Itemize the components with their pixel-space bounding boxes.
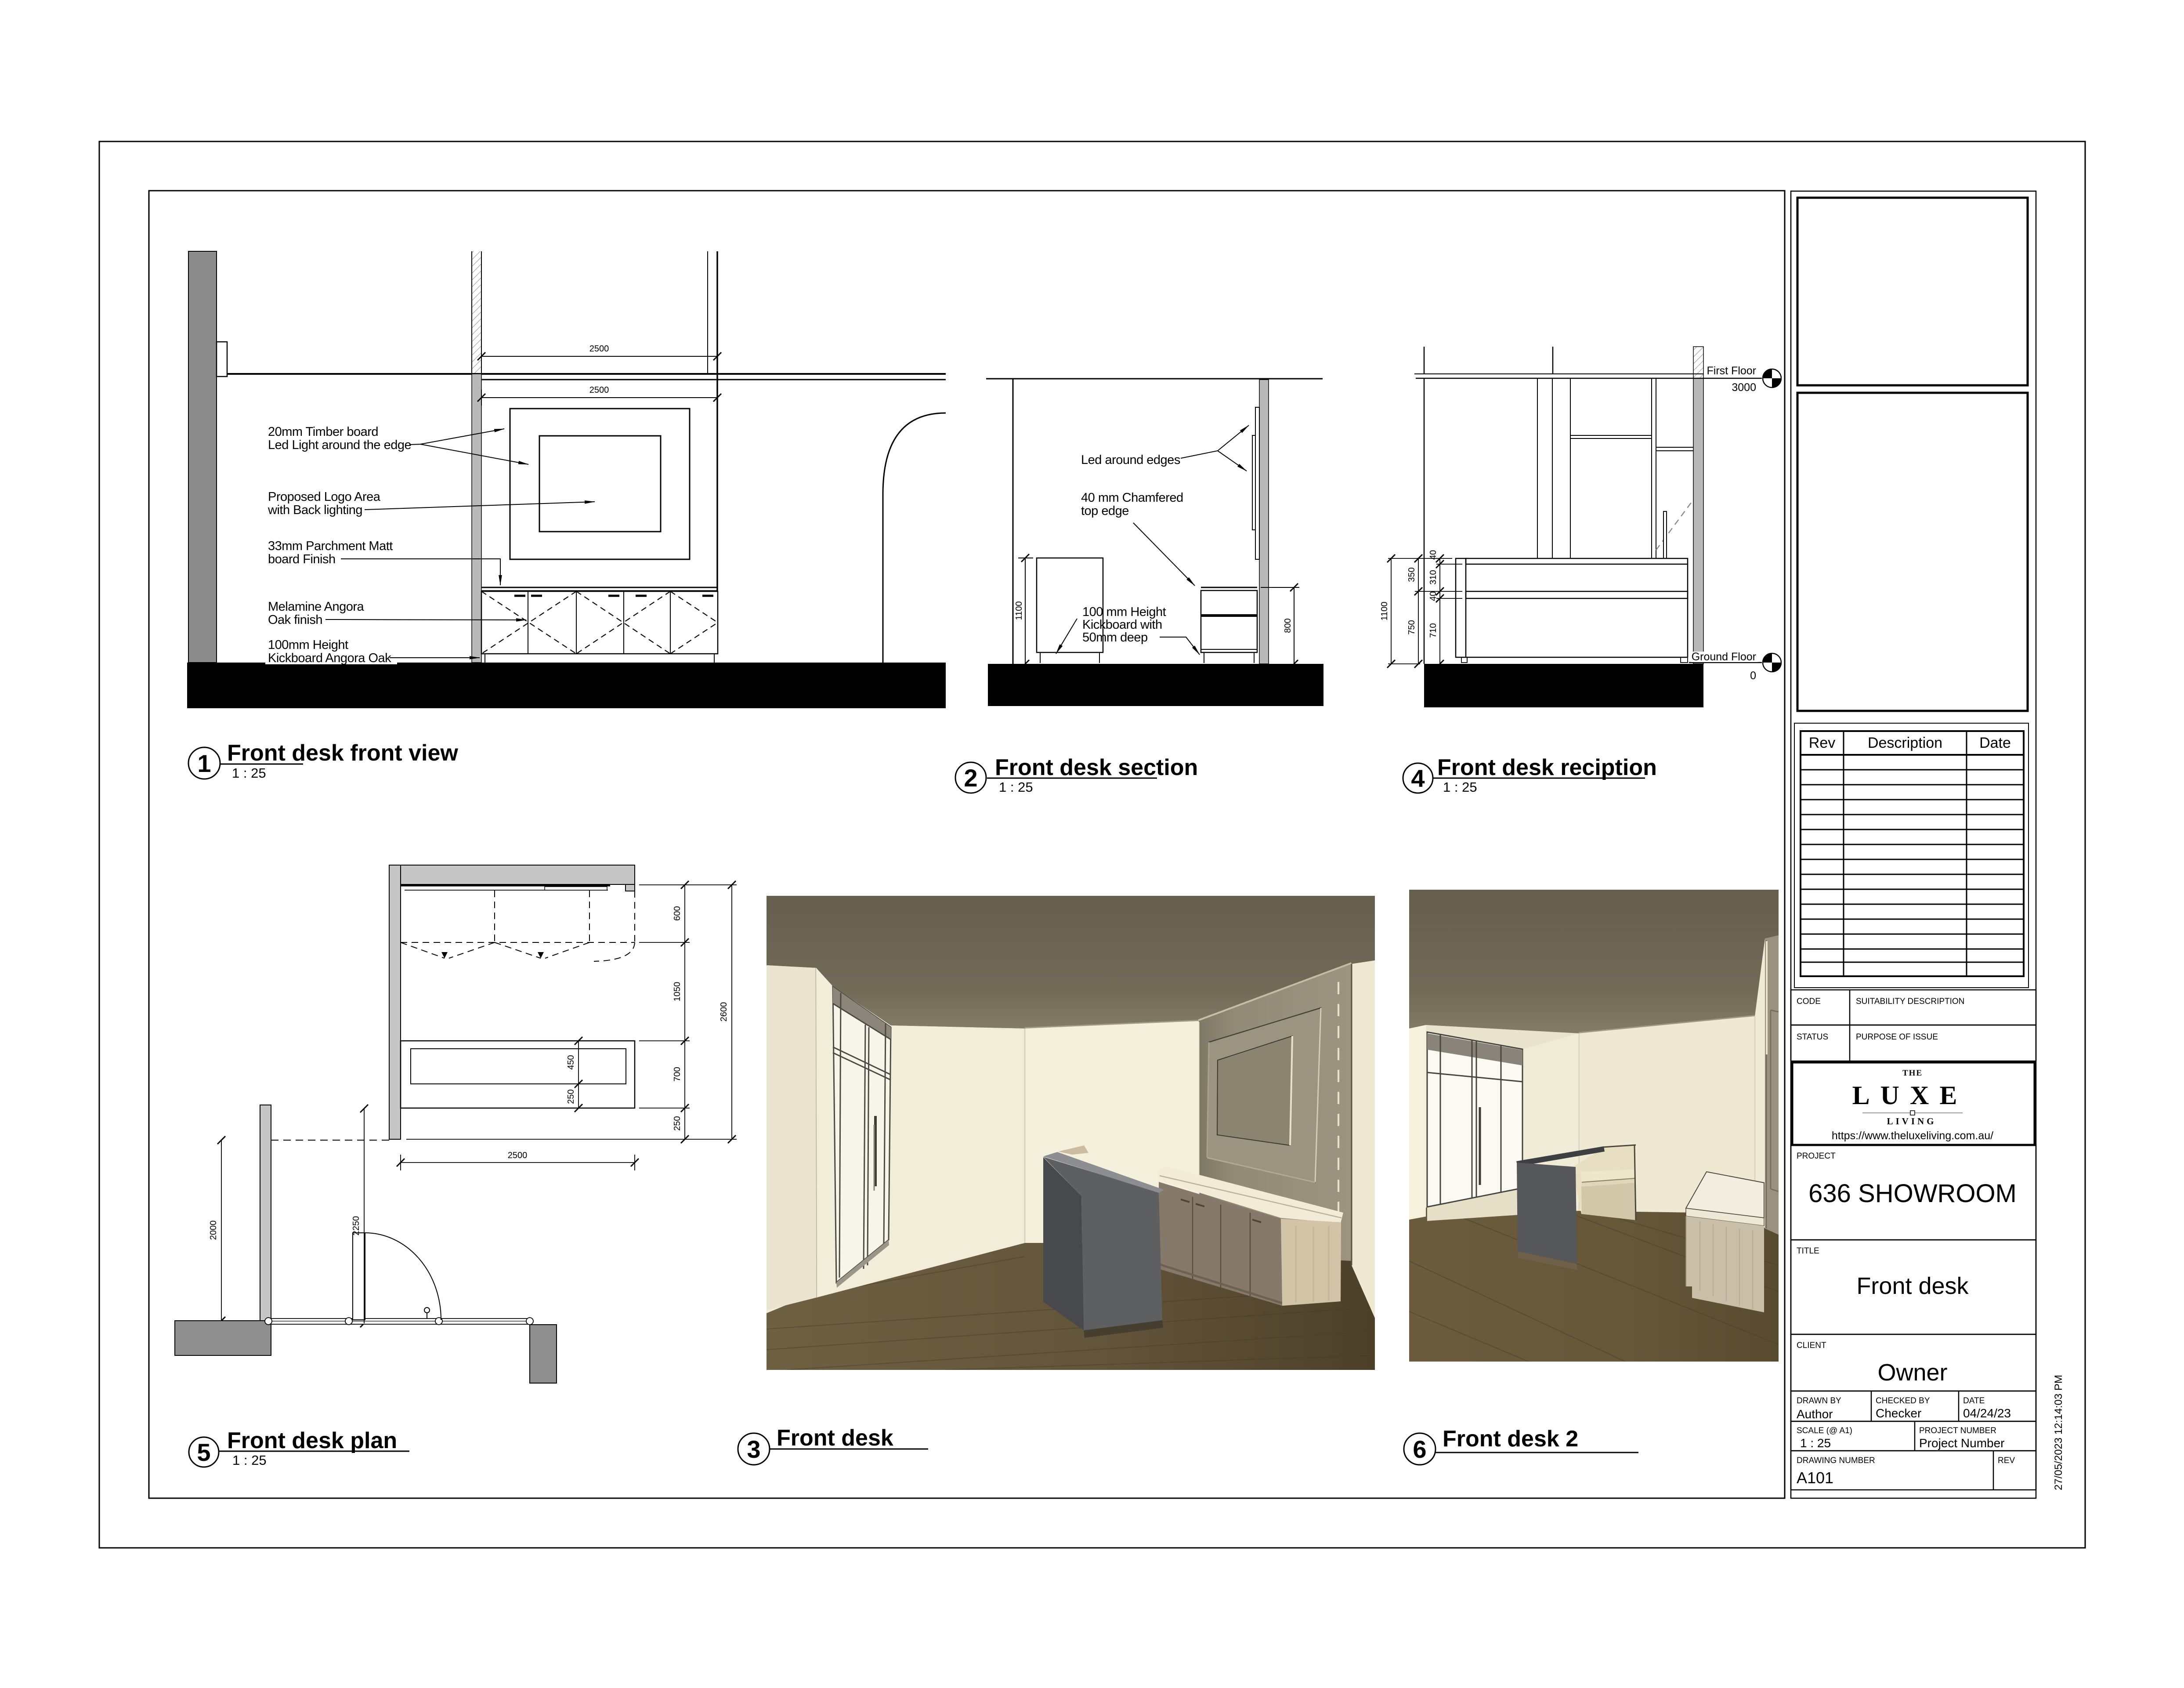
svg-text:PURPOSE OF ISSUE: PURPOSE OF ISSUE	[1856, 1032, 1938, 1042]
svg-text:LUXE: LUXE	[1852, 1081, 1968, 1110]
svg-text:CHECKED BY: CHECKED BY	[1876, 1396, 1930, 1405]
svg-text:04/24/23: 04/24/23	[1963, 1406, 2011, 1420]
svg-text:Description: Description	[1868, 735, 1942, 751]
svg-text:Kickboard Angora Oak: Kickboard Angora Oak	[268, 651, 391, 665]
svg-text:Front desk 2: Front desk 2	[1443, 1426, 1578, 1452]
svg-text:SUITABILITY DESCRIPTION: SUITABILITY DESCRIPTION	[1856, 997, 1964, 1006]
svg-text:100 mm Height: 100 mm Height	[1082, 605, 1166, 619]
svg-text:0: 0	[1750, 670, 1756, 682]
svg-text:40 mm Chamfered: 40 mm Chamfered	[1081, 491, 1183, 505]
svg-text:Owner: Owner	[1877, 1359, 1947, 1386]
svg-text:1100: 1100	[1014, 601, 1024, 620]
svg-text:Front desk section: Front desk section	[995, 755, 1198, 780]
svg-text:Front desk front view: Front desk front view	[227, 740, 458, 766]
svg-text:2250: 2250	[351, 1216, 361, 1236]
svg-text:Date: Date	[1979, 735, 2011, 751]
svg-text:1 : 25: 1 : 25	[1800, 1436, 1831, 1450]
svg-text:1 : 25: 1 : 25	[232, 1453, 267, 1468]
svg-text:Ground Floor: Ground Floor	[1692, 651, 1756, 663]
svg-text:310: 310	[1428, 570, 1438, 584]
svg-text:20mm Timber board: 20mm Timber board	[268, 425, 378, 439]
svg-text:top edge: top edge	[1081, 504, 1129, 518]
svg-text:1100: 1100	[1380, 601, 1389, 620]
svg-text:100mm Height: 100mm Height	[268, 638, 348, 652]
svg-text:1: 1	[197, 750, 211, 777]
svg-text:Front desk reciption: Front desk reciption	[1437, 755, 1657, 780]
svg-text:PROJECT: PROJECT	[1797, 1152, 1836, 1161]
svg-text:REV: REV	[1998, 1456, 2015, 1465]
svg-text:5: 5	[197, 1438, 210, 1466]
svg-text:Front desk: Front desk	[1856, 1273, 1969, 1299]
svg-text:STATUS: STATUS	[1797, 1032, 1828, 1042]
svg-text:50mm deep: 50mm deep	[1082, 630, 1148, 645]
svg-text:250: 250	[566, 1089, 576, 1104]
svg-text:710: 710	[1428, 623, 1438, 638]
svg-text:CODE: CODE	[1797, 997, 1821, 1006]
svg-text:LIVING: LIVING	[1887, 1116, 1936, 1127]
svg-text:40: 40	[1428, 591, 1438, 601]
svg-text:Kickboard with: Kickboard with	[1082, 618, 1162, 632]
svg-text:636 SHOWROOM: 636 SHOWROOM	[1808, 1179, 2017, 1208]
svg-text:with Back lighting: with Back lighting	[268, 503, 362, 517]
svg-text:250: 250	[673, 1116, 682, 1130]
svg-text:Led Light around the edge: Led Light around the edge	[268, 438, 411, 452]
svg-text:2600: 2600	[719, 1002, 729, 1022]
svg-text:450: 450	[566, 1055, 576, 1069]
svg-text:3: 3	[747, 1435, 760, 1463]
svg-text:2000: 2000	[209, 1221, 218, 1240]
svg-text:350: 350	[1407, 567, 1417, 582]
svg-text:board Finish: board Finish	[268, 552, 336, 566]
svg-text:Project Number: Project Number	[1919, 1436, 2005, 1450]
svg-text:DRAWING NUMBER: DRAWING NUMBER	[1797, 1456, 1875, 1465]
svg-text:First Floor: First Floor	[1707, 365, 1757, 377]
svg-text:6: 6	[1413, 1435, 1426, 1463]
svg-text:700: 700	[673, 1067, 682, 1081]
svg-text:SCALE (@ A1): SCALE (@ A1)	[1797, 1426, 1852, 1435]
svg-text:Melamine Angora: Melamine Angora	[268, 600, 365, 614]
svg-text:Front desk plan: Front desk plan	[227, 1428, 397, 1453]
svg-text:Author: Author	[1797, 1407, 1833, 1421]
svg-text:1 : 25: 1 : 25	[232, 765, 266, 781]
svg-text:PROJECT NUMBER: PROJECT NUMBER	[1919, 1426, 1996, 1435]
svg-text:https://www.theluxeliving.com.: https://www.theluxeliving.com.au/	[1832, 1130, 1993, 1142]
svg-text:3000: 3000	[1732, 381, 1756, 394]
svg-text:DATE: DATE	[1963, 1396, 1985, 1405]
svg-text:4: 4	[1411, 764, 1425, 792]
svg-text:40: 40	[1428, 550, 1438, 560]
svg-text:27/05/2023 12:14:03 PM: 27/05/2023 12:14:03 PM	[2053, 1375, 2065, 1490]
svg-text:1050: 1050	[673, 982, 682, 1002]
svg-text:2500: 2500	[589, 344, 609, 354]
svg-text:THE: THE	[1902, 1069, 1923, 1078]
svg-text:Checker: Checker	[1876, 1406, 1921, 1420]
svg-text:DRAWN BY: DRAWN BY	[1797, 1396, 1841, 1405]
svg-text:2500: 2500	[589, 385, 609, 395]
svg-text:750: 750	[1407, 620, 1417, 634]
svg-text:2: 2	[964, 764, 977, 792]
svg-text:Led around edges: Led around edges	[1081, 453, 1180, 467]
svg-text:1 : 25: 1 : 25	[1443, 779, 1477, 795]
svg-text:Rev: Rev	[1809, 735, 1835, 751]
svg-text:Oak finish: Oak finish	[268, 613, 322, 627]
svg-text:33mm Parchment Matt: 33mm Parchment Matt	[268, 539, 393, 553]
svg-text:TITLE: TITLE	[1797, 1246, 1819, 1256]
svg-text:Proposed Logo Area: Proposed Logo Area	[268, 490, 381, 504]
svg-text:1 : 25: 1 : 25	[999, 779, 1033, 795]
svg-text:2500: 2500	[508, 1151, 528, 1160]
svg-text:CLIENT: CLIENT	[1797, 1341, 1826, 1350]
svg-text:A101: A101	[1797, 1469, 1833, 1487]
svg-text:Front desk: Front desk	[777, 1425, 893, 1451]
svg-text:800: 800	[1283, 618, 1293, 633]
svg-text:600: 600	[673, 906, 682, 920]
